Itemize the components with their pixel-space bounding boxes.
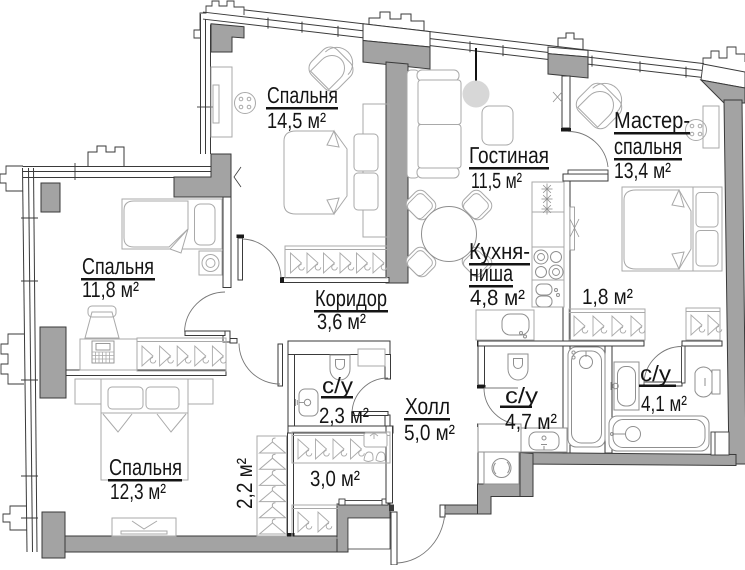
- svg-text:Спальня: Спальня: [267, 82, 338, 108]
- svg-text:2,2 м²: 2,2 м²: [232, 458, 257, 509]
- svg-text:Холл: Холл: [405, 393, 450, 419]
- svg-text:3,6 м²: 3,6 м²: [317, 309, 366, 334]
- svg-text:4,8 м²: 4,8 м²: [470, 285, 525, 310]
- svg-text:11,8 м²: 11,8 м²: [82, 277, 139, 302]
- svg-text:с/у: с/у: [640, 361, 671, 386]
- svg-text:11,5 м²: 11,5 м²: [471, 168, 522, 193]
- svg-text:3,0 м²: 3,0 м²: [310, 466, 360, 491]
- svg-text:Гостиная: Гостиная: [469, 142, 549, 168]
- svg-text:Спальня: Спальня: [109, 454, 182, 480]
- svg-text:с/у: с/у: [505, 383, 538, 408]
- svg-text:Спальня: Спальня: [82, 253, 154, 279]
- svg-text:Мастер-: Мастер-: [614, 107, 690, 133]
- svg-text:4,7 м²: 4,7 м²: [505, 409, 557, 434]
- svg-text:13,4 м²: 13,4 м²: [614, 158, 671, 183]
- svg-text:с/у: с/у: [322, 373, 353, 398]
- svg-text:4,1 м²: 4,1 м²: [641, 391, 687, 416]
- svg-text:Коридор: Коридор: [315, 285, 387, 311]
- svg-text:спальня: спальня: [614, 133, 682, 159]
- svg-text:1,8 м²: 1,8 м²: [582, 284, 633, 309]
- svg-text:5,0 м²: 5,0 м²: [404, 420, 455, 445]
- svg-text:12,3 м²: 12,3 м²: [110, 479, 166, 504]
- svg-text:2,3 м²: 2,3 м²: [319, 403, 369, 428]
- svg-text:ниша: ниша: [469, 260, 513, 286]
- svg-text:14,5 м²: 14,5 м²: [267, 108, 326, 133]
